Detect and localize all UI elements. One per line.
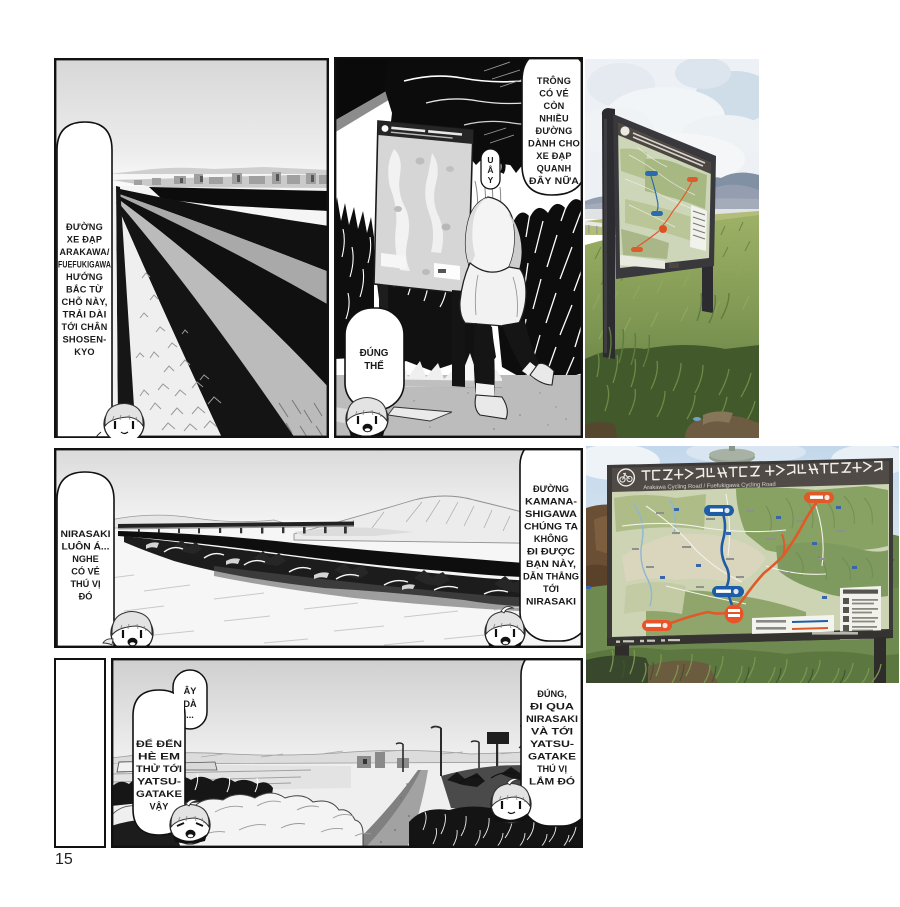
svg-text:GATAKE: GATAKE: [528, 752, 576, 762]
svg-text:ARAKAWA/: ARAKAWA/: [60, 247, 110, 257]
svg-text:LẮM ĐÓ: LẮM ĐÓ: [529, 776, 575, 787]
svg-text:CHÚNG TA: CHÚNG TA: [524, 521, 578, 532]
svg-text:THỬ TỚI: THỬ TỚI: [136, 763, 182, 774]
svg-text:ĐÂY NỮA: ĐÂY NỮA: [529, 175, 579, 186]
svg-text:NHIỀU: NHIỀU: [539, 114, 569, 124]
svg-text:BẮC TỪ: BẮC TỪ: [66, 284, 103, 295]
svg-text:ĐI ĐƯỢC: ĐI ĐƯỢC: [527, 547, 575, 557]
svg-text:THẾ: THẾ: [364, 361, 384, 372]
svg-text:DÀNH CHO: DÀNH CHO: [528, 138, 580, 149]
svg-text:TỚI CHÂN: TỚI CHÂN: [62, 321, 108, 332]
svg-text:ÂY: ÂY: [184, 685, 197, 696]
svg-text:Â: Â: [487, 164, 493, 175]
svg-text:HÈ EM: HÈ EM: [138, 751, 180, 762]
svg-text:...: ...: [186, 710, 194, 720]
svg-text:ĐÓ: ĐÓ: [79, 591, 93, 602]
svg-text:YATSU-: YATSU-: [137, 777, 181, 787]
svg-text:TRÔNG: TRÔNG: [537, 75, 571, 86]
svg-text:ĐỂ ĐẾN: ĐỂ ĐẾN: [136, 738, 182, 749]
svg-text:YATSU-: YATSU-: [530, 739, 574, 749]
svg-text:NIRASAKI: NIRASAKI: [526, 714, 578, 724]
svg-text:VÀ TỚI: VÀ TỚI: [531, 726, 573, 737]
svg-text:QUANH: QUANH: [537, 164, 572, 174]
svg-text:GATAKE: GATAKE: [136, 789, 182, 799]
svg-text:NGHE: NGHE: [72, 554, 99, 564]
svg-text:NIRASAKI: NIRASAKI: [61, 529, 111, 539]
svg-text:BẠN NÀY,: BẠN NÀY,: [526, 558, 576, 569]
svg-text:ĐÚNG: ĐÚNG: [360, 347, 389, 359]
svg-text:ĐƯỜNG: ĐƯỜNG: [66, 221, 103, 232]
svg-text:CÒN: CÒN: [543, 100, 564, 111]
svg-text:CÓ VẺ: CÓ VẺ: [539, 88, 569, 99]
svg-text:ĐƯỜNG: ĐƯỜNG: [536, 125, 573, 136]
svg-text:VẬY: VẬY: [150, 801, 169, 812]
svg-text:TRẢI DÀI: TRẢI DÀI: [63, 309, 107, 320]
svg-text:ĐI QUA: ĐI QUA: [530, 702, 574, 712]
svg-text:CÓ VẺ: CÓ VẺ: [71, 566, 100, 577]
svg-text:XE ĐẠP: XE ĐẠP: [536, 151, 571, 161]
svg-text:HƯỚNG: HƯỚNG: [66, 271, 103, 282]
svg-text:TỚI: TỚI: [543, 583, 559, 594]
svg-text:THÚ VỊ: THÚ VỊ: [537, 763, 567, 774]
svg-text:ĐƯỜNG: ĐƯỜNG: [533, 483, 569, 494]
svg-text:SHOSEN-: SHOSEN-: [63, 335, 107, 345]
svg-text:FUEFUKIGAWA: FUEFUKIGAWA: [58, 260, 111, 270]
svg-text:DẪN THẲNG: DẪN THẲNG: [523, 571, 579, 582]
svg-text:LUÔN Á...: LUÔN Á...: [62, 541, 110, 552]
svg-text:KYO: KYO: [74, 347, 95, 357]
svg-text:XE ĐẠP: XE ĐẠP: [67, 235, 102, 245]
svg-text:Y: Y: [488, 175, 494, 185]
svg-text:DÀ: DÀ: [183, 698, 197, 709]
svg-text:SHIGAWA: SHIGAWA: [525, 509, 577, 519]
svg-text:CHỖ NÀY,: CHỖ NÀY,: [62, 296, 108, 307]
svg-text:ĐÚNG,: ĐÚNG,: [537, 688, 567, 699]
svg-text:NIRASAKI: NIRASAKI: [526, 597, 576, 607]
svg-text:KHÔNG: KHÔNG: [534, 533, 568, 544]
svg-text:U: U: [487, 155, 493, 165]
svg-text:KAMANA-: KAMANA-: [525, 497, 577, 507]
svg-text:THÚ VỊ: THÚ VỊ: [70, 578, 100, 589]
